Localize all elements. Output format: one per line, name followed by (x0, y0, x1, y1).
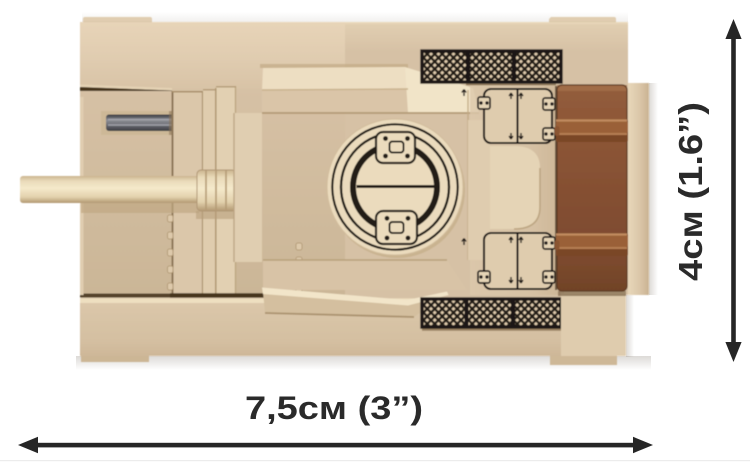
svg-text:4см (1.6”): 4см (1.6”) (672, 102, 709, 281)
svg-text:7,5см (3”): 7,5см (3”) (245, 390, 423, 426)
